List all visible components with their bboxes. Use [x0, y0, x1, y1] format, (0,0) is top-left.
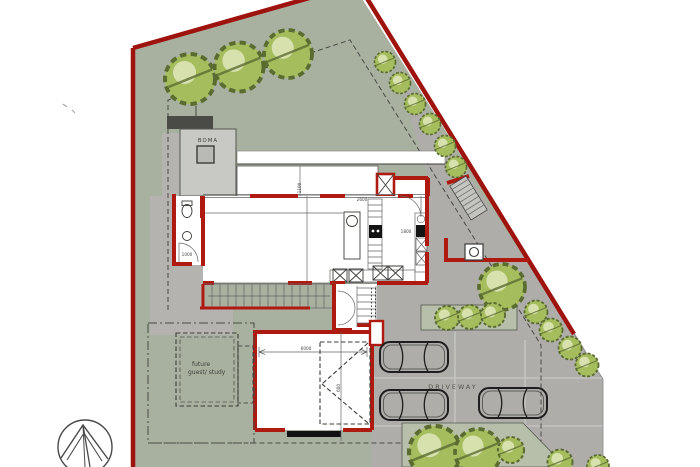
driveway-label: DRIVEWAY [428, 383, 477, 391]
site-plan-drawing: BOMA 1100 1000 [0, 0, 700, 467]
future-guest-label-line1: future [192, 361, 210, 368]
tree-icon [165, 54, 215, 104]
north-arrow-icon [58, 420, 112, 467]
tree-icon [264, 30, 312, 78]
tree-icon [458, 305, 482, 329]
tree-icon [559, 337, 582, 360]
dimension-label: 1800 [401, 229, 412, 234]
tree-icon [576, 354, 599, 377]
tree-icon [481, 303, 505, 327]
tree-icon [409, 426, 461, 467]
tree-icon [375, 52, 396, 73]
tree-icon [405, 94, 426, 115]
dimension-label: 1100 [297, 182, 302, 193]
site-plan-canvas: BOMA 1100 1000 [0, 0, 700, 467]
dimension-label: 1000 [182, 252, 193, 257]
dimension-label: 2600 [357, 197, 368, 202]
tree-icon [548, 450, 573, 467]
garage-plan: 6000 600 [253, 332, 374, 441]
survey-marks [63, 104, 75, 113]
tree-icon [540, 319, 563, 342]
tree-icon [435, 136, 456, 157]
tree-icon [215, 43, 264, 92]
dimension-label: 600 [336, 384, 341, 392]
tree-icon [479, 264, 525, 310]
tree-icon [435, 306, 459, 330]
boma-label: BOMA [198, 138, 218, 144]
tree-icon [446, 157, 467, 178]
tree-icon [420, 114, 441, 135]
tree-icon [498, 437, 524, 463]
future-guest-label-line2: guest/ study [188, 369, 226, 376]
dimension-label: 6000 [301, 346, 312, 351]
tree-icon [390, 73, 411, 94]
gate-pillar [370, 321, 383, 345]
braai-box [377, 174, 394, 196]
